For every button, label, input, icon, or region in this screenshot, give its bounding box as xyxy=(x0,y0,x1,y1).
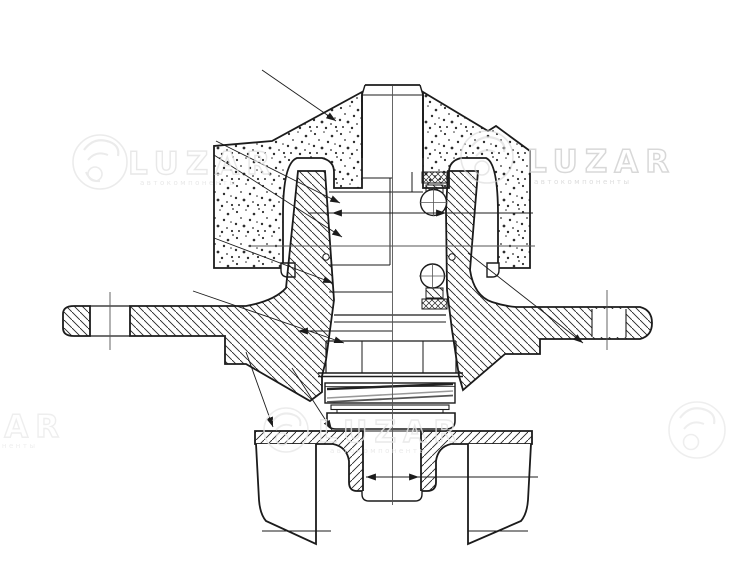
bearing-seal-bottom xyxy=(422,299,447,309)
bearing-assembly xyxy=(323,172,455,309)
luzar-wordmark: LUZAR xyxy=(527,144,676,180)
impeller-hub-tray xyxy=(362,491,422,501)
inner-race-edges xyxy=(329,172,423,292)
luzar-wordmark: LUZAR xyxy=(128,146,277,182)
impeller-blade-left xyxy=(256,444,316,544)
bearing-race-shoulder-bottom xyxy=(426,288,443,298)
luzar-wordmark: LUZAR xyxy=(0,409,66,445)
luzar-watermark-bottom-left: LUZAR автокомпоненты xyxy=(0,409,66,450)
water-pump-cross-section-drawing: LUZAR автокомпоненты LUZAR автокомпонент… xyxy=(0,0,730,586)
lube-hole-left xyxy=(323,254,329,260)
luzar-logo-icon xyxy=(73,135,127,189)
luzar-tagline: автокомпоненты xyxy=(330,447,428,455)
bearing-seal-top xyxy=(422,172,447,183)
flange-left-end-cap xyxy=(63,306,90,336)
pump-body-right xyxy=(446,171,652,390)
leader-damper xyxy=(262,70,336,121)
seal-washer xyxy=(331,405,449,410)
pump-body xyxy=(63,171,652,401)
luzar-tagline: автокомпоненты xyxy=(140,179,238,187)
luzar-wordmark: LUZAR xyxy=(318,415,463,450)
luzar-tagline: автокомпоненты xyxy=(534,178,632,186)
luzar-watermark-bottom-right xyxy=(669,402,725,458)
lube-hole-right xyxy=(449,254,455,260)
luzar-logo-icon xyxy=(669,402,725,458)
hub-band xyxy=(318,315,463,377)
technical-drawing-page: LUZAR автокомпоненты LUZAR автокомпонент… xyxy=(0,0,730,586)
luzar-tagline: автокомпоненты xyxy=(0,442,38,450)
impeller-blade-right xyxy=(468,444,531,544)
damper-lip-right xyxy=(487,263,499,277)
flange-right-hole xyxy=(592,309,626,337)
